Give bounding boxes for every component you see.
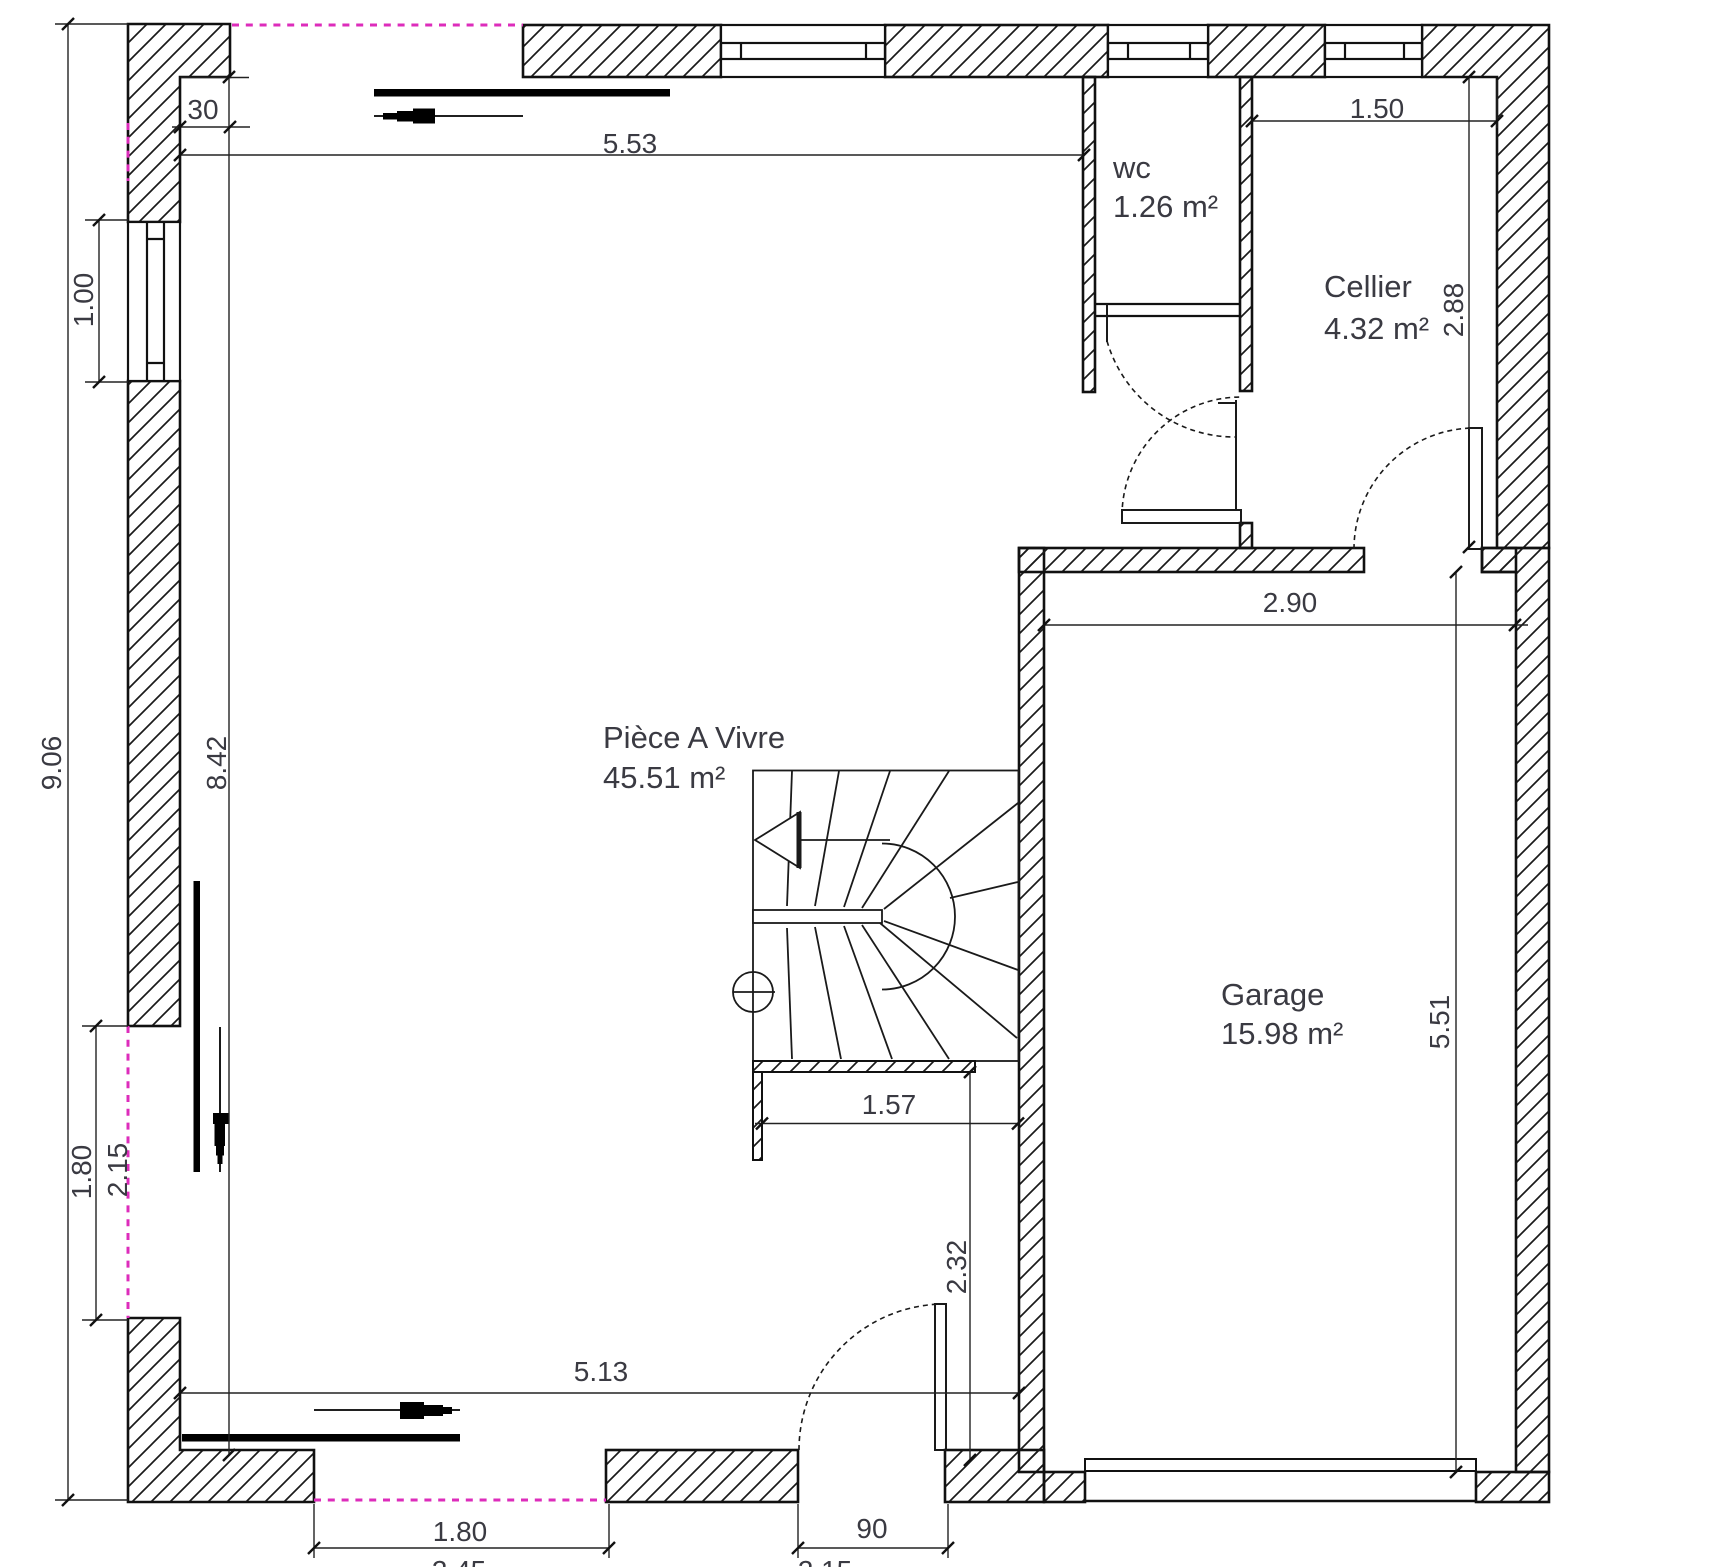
svg-text:4.32 m²: 4.32 m²: [1324, 311, 1429, 346]
svg-text:1.57: 1.57: [862, 1089, 917, 1120]
svg-text:1.80: 1.80: [66, 1145, 97, 1200]
svg-text:1.50: 1.50: [1350, 93, 1405, 124]
svg-text:5.51: 5.51: [1424, 995, 1455, 1050]
svg-text:5.13: 5.13: [574, 1356, 629, 1387]
svg-text:30: 30: [187, 94, 218, 125]
svg-text:15.98 m²: 15.98 m²: [1221, 1016, 1343, 1051]
svg-text:90: 90: [856, 1513, 887, 1544]
svg-text:45.51 m²: 45.51 m²: [603, 760, 725, 795]
svg-text:2.15: 2.15: [798, 1555, 853, 1567]
svg-text:8.42: 8.42: [201, 736, 232, 791]
svg-text:1.26 m²: 1.26 m²: [1113, 189, 1218, 224]
svg-text:2.90: 2.90: [1263, 587, 1318, 618]
svg-text:5.53: 5.53: [603, 128, 658, 159]
svg-text:2.32: 2.32: [941, 1240, 972, 1295]
svg-text:1.80: 1.80: [433, 1516, 488, 1547]
svg-text:2.88: 2.88: [1438, 283, 1469, 338]
svg-text:Pièce A Vivre: Pièce A Vivre: [603, 720, 785, 755]
svg-text:2.15: 2.15: [102, 1143, 133, 1198]
svg-text:Cellier: Cellier: [1324, 269, 1412, 304]
svg-text:9.06: 9.06: [36, 736, 67, 791]
svg-text:Garage: Garage: [1221, 977, 1324, 1012]
svg-text:wc: wc: [1112, 150, 1151, 185]
svg-text:1.00: 1.00: [68, 273, 99, 328]
svg-text:2.45: 2.45: [432, 1555, 487, 1567]
